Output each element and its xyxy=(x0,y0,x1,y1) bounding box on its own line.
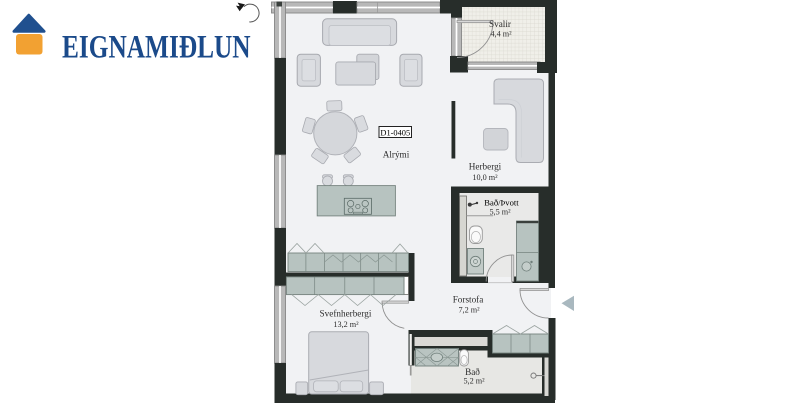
svg-text:7,2 m²: 7,2 m² xyxy=(458,306,480,315)
svg-text:Alrými: Alrými xyxy=(383,150,410,160)
svg-text:Svefnherbergi: Svefnherbergi xyxy=(320,309,372,319)
svg-text:Bað: Bað xyxy=(465,367,480,377)
svg-text:Forstofa: Forstofa xyxy=(453,295,484,305)
svg-text:D1-0405: D1-0405 xyxy=(380,128,410,137)
svg-text:5,2 m²: 5,2 m² xyxy=(463,377,485,386)
svg-text:Svalir: Svalir xyxy=(489,19,511,29)
svg-text:Herbergi: Herbergi xyxy=(469,162,502,172)
svg-text:Bað/Þvott: Bað/Þvott xyxy=(484,198,519,208)
svg-text:4,4 m²: 4,4 m² xyxy=(490,30,512,39)
svg-text:13,2 m²: 13,2 m² xyxy=(333,320,359,329)
svg-text:5,5 m²: 5,5 m² xyxy=(489,208,511,217)
svg-text:EIGNAMIÐLUN: EIGNAMIÐLUN xyxy=(62,30,251,66)
svg-text:10,0 m²: 10,0 m² xyxy=(472,173,498,182)
